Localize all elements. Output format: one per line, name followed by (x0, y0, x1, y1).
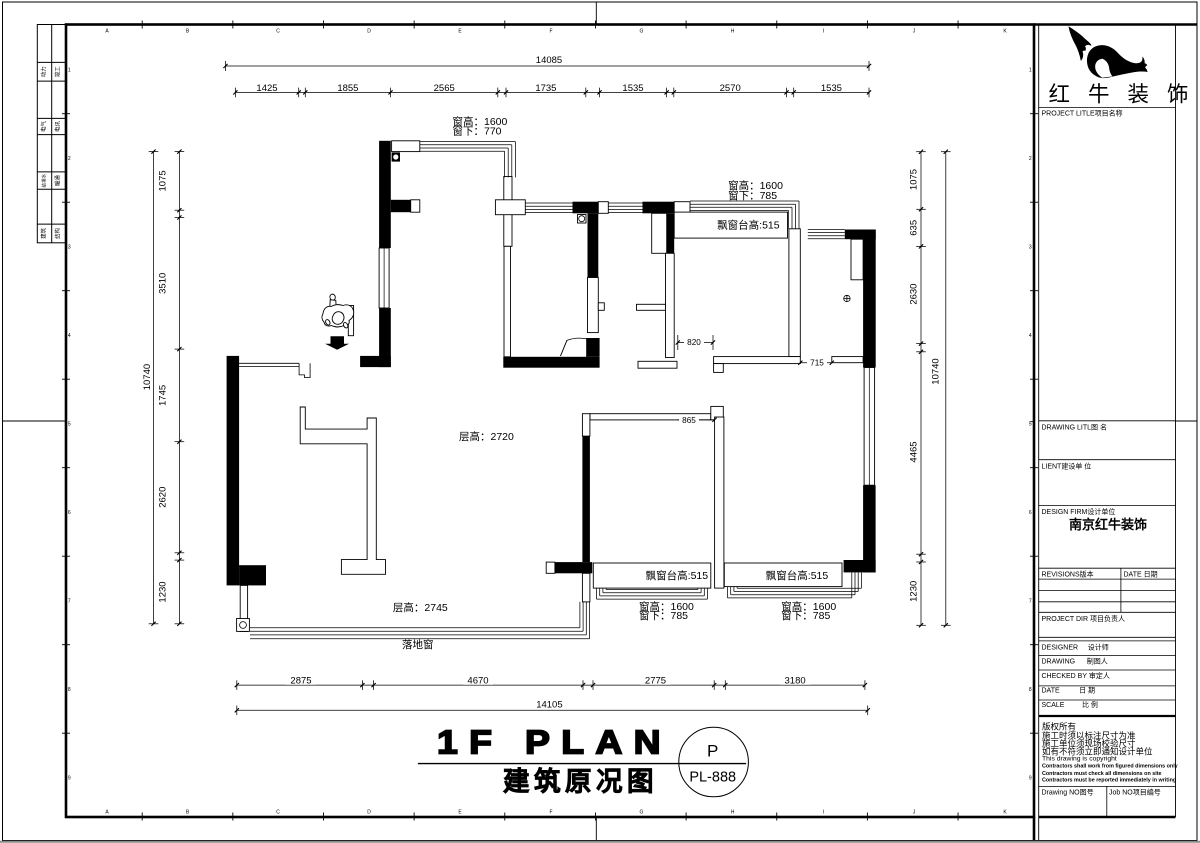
svg-text:8: 8 (68, 687, 71, 693)
svg-text:1745: 1745 (158, 385, 169, 406)
svg-text:PL-888: PL-888 (689, 770, 736, 786)
svg-text:电气: 电气 (39, 121, 47, 132)
svg-text:I: I (823, 810, 824, 816)
svg-text:2: 2 (1029, 156, 1032, 162)
svg-text:1075: 1075 (158, 170, 169, 191)
svg-text:K: K (1003, 810, 1007, 816)
svg-text:DATE 日期: DATE 日期 (1124, 571, 1158, 579)
svg-text:动力: 动力 (39, 66, 47, 77)
svg-text:3510: 3510 (158, 273, 169, 294)
svg-text:红 牛 装 饰: 红 牛 装 饰 (1049, 83, 1195, 107)
svg-text:2570: 2570 (720, 83, 741, 94)
svg-text:Job NO项目编号: Job NO项目编号 (1109, 788, 1161, 797)
svg-text:865: 865 (682, 416, 696, 425)
svg-text:9: 9 (1029, 776, 1032, 782)
svg-text:层高：2745: 层高：2745 (393, 601, 448, 614)
svg-text:4465: 4465 (909, 441, 920, 462)
svg-text:Contractors shall work from fi: Contractors shall work from figured dime… (1042, 764, 1178, 770)
svg-text:DATE 日 期: DATE 日 期 (1042, 687, 1096, 695)
svg-text:建筑: 建筑 (39, 227, 47, 238)
svg-text:1230: 1230 (158, 581, 169, 602)
svg-text:5: 5 (1029, 422, 1032, 428)
svg-text:E: E (458, 810, 462, 816)
svg-text:窗下：770: 窗下：770 (453, 125, 502, 138)
svg-text:635: 635 (909, 220, 920, 236)
svg-text:飘窗台高:515: 飘窗台高:515 (646, 569, 709, 582)
svg-text:8: 8 (1029, 687, 1032, 693)
svg-text:G: G (640, 810, 644, 816)
svg-text:SCALE 比 例: SCALE 比 例 (1042, 700, 1098, 709)
svg-text:CHECKED BY 审定人: CHECKED BY 审定人 (1042, 671, 1110, 680)
svg-text:PROJECT LITLE项目名称: PROJECT LITLE项目名称 (1042, 109, 1123, 118)
svg-text:落地窗: 落地窗 (402, 638, 434, 651)
svg-text:5: 5 (68, 422, 71, 428)
svg-text:J: J (913, 810, 916, 816)
svg-text:窗下：785: 窗下：785 (781, 609, 830, 622)
svg-text:给排水: 给排水 (40, 173, 47, 187)
svg-text:F: F (549, 29, 552, 35)
svg-text:电讯: 电讯 (54, 121, 62, 132)
svg-text:10740: 10740 (931, 358, 942, 384)
svg-text:4: 4 (1029, 333, 1032, 339)
svg-text:This drawing is copyright: This drawing is copyright (1042, 756, 1117, 763)
svg-text:层高：2720: 层高：2720 (459, 430, 514, 443)
svg-text:14085: 14085 (536, 55, 562, 66)
svg-text:4: 4 (68, 333, 71, 339)
svg-text:1855: 1855 (337, 83, 358, 94)
svg-text:3: 3 (68, 245, 71, 251)
svg-text:G: G (640, 29, 644, 35)
svg-text:B: B (186, 810, 190, 816)
svg-text:F: F (549, 810, 552, 816)
svg-text:3180: 3180 (785, 676, 806, 687)
svg-text:C: C (276, 29, 280, 35)
svg-text:D: D (367, 29, 371, 35)
svg-text:P: P (707, 742, 718, 761)
svg-text:DESIGN FIRM设计单位: DESIGN FIRM设计单位 (1042, 507, 1116, 516)
svg-text:2620: 2620 (158, 487, 169, 508)
svg-text:窗下：785: 窗下：785 (728, 189, 777, 202)
svg-text:7: 7 (68, 599, 71, 605)
svg-text:H: H (731, 810, 735, 816)
svg-text:1230: 1230 (909, 581, 920, 602)
svg-text:1075: 1075 (909, 169, 920, 190)
svg-text:1425: 1425 (256, 83, 277, 94)
svg-text:飘窗台高:515: 飘窗台高:515 (717, 219, 780, 232)
svg-text:LIENT建设单 位: LIENT建设单 位 (1042, 462, 1092, 471)
svg-text:7: 7 (1029, 599, 1032, 605)
svg-text:DRAWING 制图人: DRAWING 制图人 (1042, 657, 1108, 666)
svg-text:J: J (913, 29, 916, 35)
svg-text:2: 2 (68, 156, 71, 162)
svg-text:窗下：785: 窗下：785 (639, 609, 688, 622)
svg-text:715: 715 (810, 359, 824, 368)
svg-text:2875: 2875 (290, 676, 311, 687)
svg-text:C: C (276, 810, 280, 816)
svg-text:820: 820 (687, 338, 701, 347)
svg-text:DRAWING LITL图 名: DRAWING LITL图 名 (1042, 423, 1107, 432)
svg-text:Contractors must be reported i: Contractors must be reported immediately… (1042, 778, 1176, 784)
svg-text:2775: 2775 (645, 676, 666, 687)
svg-text:10740: 10740 (142, 364, 153, 390)
svg-text:A: A (105, 810, 109, 816)
svg-text:2630: 2630 (909, 284, 920, 305)
svg-text:E: E (458, 29, 462, 35)
svg-text:暖通: 暖通 (54, 175, 62, 186)
svg-text:1: 1 (1029, 68, 1032, 74)
svg-text:D: D (367, 810, 371, 816)
svg-text:DESIGNER 设计师: DESIGNER 设计师 (1042, 643, 1109, 652)
svg-text:I: I (823, 29, 824, 35)
svg-text:南京红牛装饰: 南京红牛装饰 (1069, 517, 1147, 532)
svg-text:飘窗台高:515: 飘窗台高:515 (766, 569, 829, 582)
svg-text:REVISIONS版本: REVISIONS版本 (1042, 570, 1094, 579)
svg-text:Contractors must check all dim: Contractors must check all dimensions on… (1042, 771, 1162, 777)
svg-text:竣工: 竣工 (54, 66, 62, 77)
svg-text:建筑原况图: 建筑原况图 (503, 767, 658, 797)
svg-text:4670: 4670 (467, 676, 488, 687)
svg-text:A: A (105, 29, 109, 35)
svg-text:K: K (1003, 29, 1007, 35)
svg-text:B: B (186, 29, 190, 35)
svg-text:PROJECT DIR 项目负责人: PROJECT DIR 项目负责人 (1042, 614, 1126, 623)
svg-text:1535: 1535 (821, 83, 842, 94)
svg-text:H: H (731, 29, 735, 35)
svg-text:3: 3 (1029, 245, 1032, 251)
svg-text:Drawing NO图号: Drawing NO图号 (1042, 789, 1094, 797)
svg-text:1F PLAN: 1F PLAN (437, 724, 672, 761)
svg-text:2565: 2565 (434, 83, 455, 94)
svg-text:6: 6 (1029, 510, 1032, 516)
svg-text:结构: 结构 (54, 227, 62, 238)
svg-text:9: 9 (68, 776, 71, 782)
svg-text:1: 1 (68, 68, 71, 74)
svg-text:6: 6 (68, 510, 71, 516)
svg-text:1535: 1535 (622, 83, 643, 94)
svg-text:1735: 1735 (535, 83, 556, 94)
svg-text:14105: 14105 (536, 700, 562, 711)
